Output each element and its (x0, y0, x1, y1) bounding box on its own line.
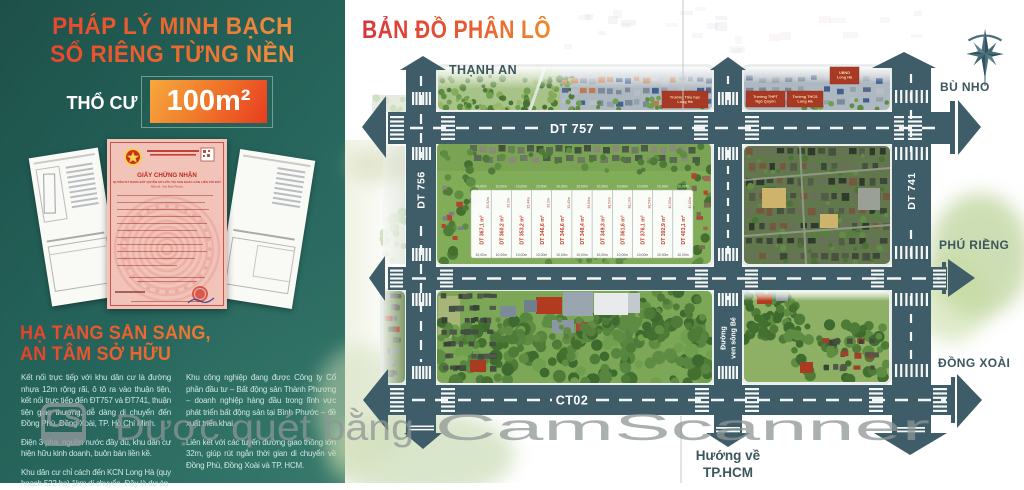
svg-text:35,43m: 35,43m (567, 197, 571, 208)
svg-text:10,00m: 10,00m (556, 185, 567, 189)
svg-text:10,00m: 10,00m (597, 253, 608, 257)
svg-text:DT 741: DT 741 (906, 172, 918, 209)
svg-text:38,54m: 38,54m (648, 197, 652, 208)
svg-text:DT 348,4 m²: DT 348,4 m² (580, 215, 586, 244)
svg-text:CamScanner: CamScanner (435, 407, 930, 448)
svg-text:10,00m: 10,00m (617, 185, 628, 189)
svg-text:10,00m: 10,00m (637, 185, 648, 189)
svg-text:10,00m: 10,00m (576, 185, 587, 189)
svg-text:10,00m: 10,00m (597, 185, 608, 189)
svg-text:DT 353,2 m²: DT 353,2 m² (520, 215, 526, 244)
svg-text:Trường Tiểu học: Trường Tiểu học (670, 95, 700, 99)
svg-text:10,00m: 10,00m (657, 253, 668, 257)
svg-text:ven sông Bé: ven sông Bé (731, 317, 738, 359)
svg-text:10,00m: 10,00m (677, 253, 688, 257)
svg-text:35,84m: 35,84m (587, 197, 591, 208)
svg-text:UBND: UBND (839, 71, 850, 75)
svg-text:10,00m: 10,00m (536, 253, 547, 257)
svg-text:40,62m: 40,62m (688, 197, 692, 208)
svg-text:40,55m: 40,55m (668, 197, 672, 208)
svg-text:DT 360,2 m²: DT 360,2 m² (500, 215, 506, 244)
svg-text:Long Hà: Long Hà (837, 76, 853, 80)
svg-text:10,00m: 10,00m (576, 253, 587, 257)
svg-text:DT 403,1 m²: DT 403,1 m² (681, 215, 687, 244)
svg-text:10,00m: 10,00m (475, 185, 486, 189)
svg-text:10,00m: 10,00m (657, 185, 668, 189)
svg-text:10,00m: 10,00m (516, 185, 527, 189)
svg-text:10,00m: 10,00m (496, 185, 507, 189)
svg-text:Được quét bằng: Được quét bằng (115, 407, 414, 448)
svg-text:PHÚ RIỀNG: PHÚ RIỀNG (939, 237, 1009, 252)
svg-text:Long Hà: Long Hà (797, 100, 813, 104)
svg-text:THẠNH AN: THẠNH AN (449, 63, 517, 77)
svg-text:DT 376,1 m²: DT 376,1 m² (641, 215, 647, 244)
svg-text:DT 346,6 m²: DT 346,6 m² (540, 215, 546, 244)
svg-text:10,00m: 10,00m (677, 185, 688, 189)
svg-text:35,3m: 35,3m (506, 198, 510, 208)
svg-text:10,00m: 10,00m (516, 253, 527, 257)
svg-text:10,00m: 10,00m (496, 253, 507, 257)
svg-text:10,00m: 10,00m (617, 253, 628, 257)
svg-text:DT 756: DT 756 (416, 171, 428, 208)
svg-text:Trường THCS: Trường THCS (792, 95, 818, 99)
svg-text:10,00m: 10,00m (536, 185, 547, 189)
svg-text:DT 346,6 m²: DT 346,6 m² (560, 215, 566, 244)
svg-text:Đường: Đường (721, 326, 728, 350)
svg-text:10,00m: 10,00m (556, 253, 567, 257)
svg-text:ĐỒNG XOÀI: ĐỒNG XOÀI (938, 355, 1010, 370)
svg-text:10,00m: 10,00m (637, 253, 648, 257)
svg-text:35,3m: 35,3m (547, 198, 551, 208)
svg-text:10,00m: 10,00m (475, 253, 486, 257)
svg-text:Trường THPT: Trường THPT (753, 95, 778, 99)
svg-text:Ngô Quyền: Ngô Quyền (755, 100, 776, 104)
svg-text:DT 392,9 m²: DT 392,9 m² (661, 215, 667, 244)
svg-text:BÙ NHO: BÙ NHO (940, 79, 990, 94)
svg-text:DT 757: DT 757 (550, 122, 594, 136)
svg-text:38,53m: 38,53m (607, 197, 611, 208)
svg-text:35,92m: 35,92m (486, 197, 490, 208)
svg-text:DT 367,1 m²: DT 367,1 m² (479, 215, 485, 244)
svg-text:38,13m: 38,13m (628, 197, 632, 208)
svg-text:Long Hà: Long Hà (677, 100, 693, 104)
svg-text:DT 361,6 m²: DT 361,6 m² (621, 215, 627, 244)
svg-text:DT 349,3 m²: DT 349,3 m² (600, 215, 606, 244)
svg-text:35,44m: 35,44m (527, 197, 531, 208)
